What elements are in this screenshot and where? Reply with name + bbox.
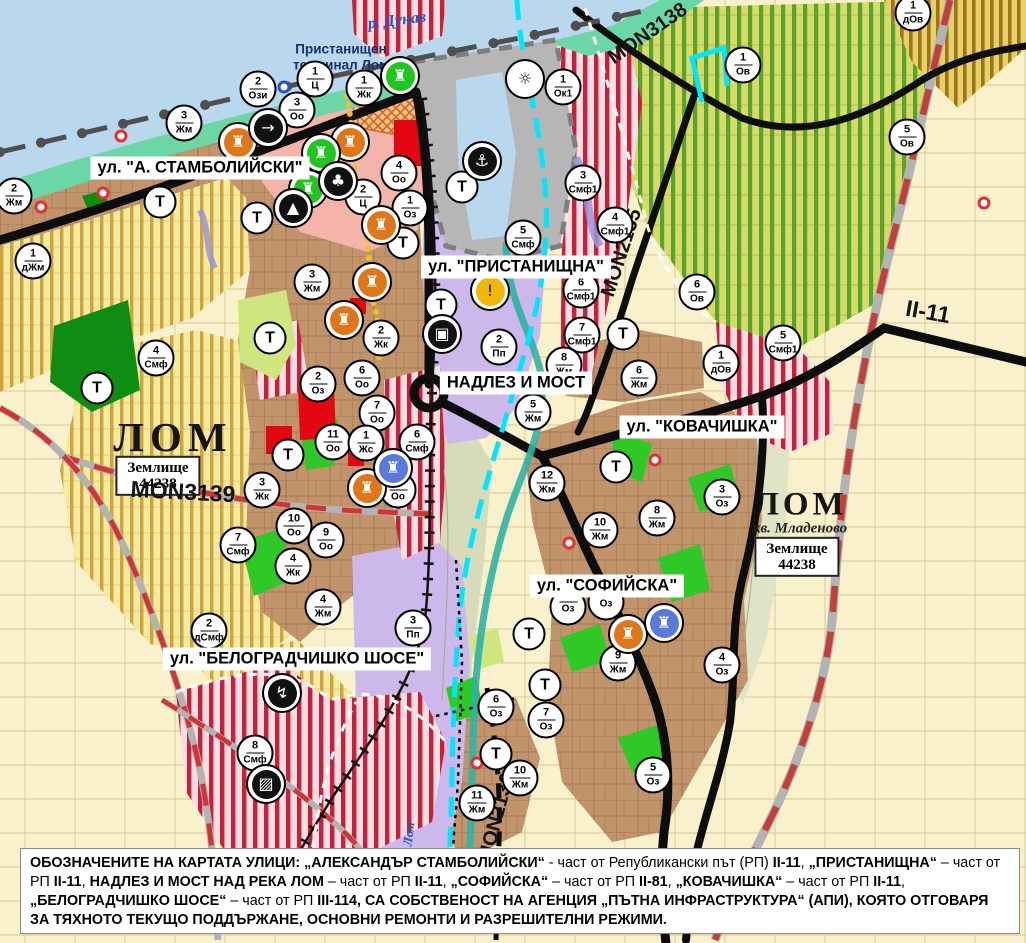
legend-note: ОБОЗНАЧЕНИТЕ НА КАРТАТА УЛИЦИ: „АЛЕКСАНД… xyxy=(20,848,1020,934)
street-label-sofiyska: ул. "СОФИЙСКА" xyxy=(530,575,684,598)
zone-marker-Жк: 3Жк xyxy=(244,472,281,509)
zone-marker-Ов: 5Ов xyxy=(889,119,926,156)
map-canvas[interactable]: р. Дунав Пристанищен терминал Лом ЛОМ Зе… xyxy=(0,0,1026,943)
red-node-icon xyxy=(649,454,662,467)
land-plot-box-east: Землище 44238 xyxy=(754,537,839,577)
zone-marker-Смф: 4Смф xyxy=(138,340,175,377)
zone-marker-Жм: 10Жм xyxy=(582,512,619,549)
zone-marker-Жм: 3Жм xyxy=(166,105,203,142)
zone-marker-дСмф: 2дСмф xyxy=(191,613,228,650)
zone-marker-Пп: 3Пп xyxy=(395,610,432,647)
t-marker: Т xyxy=(254,322,287,355)
zone-marker-Оз: 7Оз xyxy=(528,702,565,739)
zone-marker-Смф: 7Смф xyxy=(220,527,257,564)
red-node-icon xyxy=(978,197,991,210)
zone-marker-Пп: 2Пп xyxy=(481,329,518,366)
zone-marker-дОв: 1дОв xyxy=(703,345,740,382)
zone-marker-Смф1: 3Смф1 xyxy=(565,165,602,202)
t-marker: Т xyxy=(600,451,633,484)
sun-icon: ☼ xyxy=(505,59,545,99)
anchor-icon: ⚓ xyxy=(462,141,502,181)
zone-marker-Жм: 12Жм xyxy=(529,465,566,502)
street-label-pristanishtna: ул. "ПРИСТАНИЩНА" xyxy=(421,256,611,279)
t-marker: Т xyxy=(272,439,305,472)
zone-marker-Жм: 11Жм xyxy=(459,785,496,822)
street-label-kovachishka: ул. "КОВАЧИШКА" xyxy=(620,416,785,439)
zone-marker-Жм: 3Жм xyxy=(294,264,331,301)
red-node-icon xyxy=(115,130,128,143)
street-label-nadlez-most: НАДЛЕЗ И МОСТ xyxy=(440,372,592,395)
plot-line1: Землище xyxy=(127,460,188,476)
t-marker: Т xyxy=(144,186,177,219)
zone-marker-Жк: 4Жк xyxy=(275,548,312,585)
zone-marker-Жк: 2Жк xyxy=(363,320,400,357)
zone-marker-Смф: 5Смф xyxy=(505,220,542,257)
zone-marker-Жм: 8Жм xyxy=(639,500,676,537)
heritage-blue-icon: ♜ xyxy=(373,448,413,488)
heritage-icon: ♜ xyxy=(608,614,648,654)
plot-line2: 44238 xyxy=(766,557,827,573)
heritage-blue-icon: ♜ xyxy=(644,603,684,643)
zone-marker-Оо: 11Оо xyxy=(315,424,352,461)
street-label-stamboliyski: ул. "А. СТАМБОЛИЙСКИ" xyxy=(91,157,310,180)
zone-marker-Смф1: 5Смф1 xyxy=(765,325,802,362)
street-label-belogradchishko: ул. "БЕЛОГРАДЧИШКО ШОСЕ" xyxy=(163,648,431,671)
zone-marker-Оо: 9Оо xyxy=(308,522,345,559)
zone-marker-Оз: 3Оз xyxy=(704,479,741,516)
zone-marker-Оз: 6Оз xyxy=(478,689,515,726)
red-node-icon xyxy=(35,201,48,214)
zone-marker-Жм: 6Жм xyxy=(621,360,658,397)
heritage-icon: ♜ xyxy=(324,300,364,340)
road-label-mon3139: MON3139 xyxy=(130,476,236,508)
zone-marker-Ок1: 1Ок1 xyxy=(545,69,582,106)
zone-marker-Ози: 2Ози xyxy=(240,71,277,108)
t-marker: Т xyxy=(81,372,114,405)
zone-marker-Оз: 5Оз xyxy=(635,757,672,794)
zone-marker-Оо: 6Оо xyxy=(344,360,381,397)
zone-marker-Жк: 1Жк xyxy=(346,70,383,107)
clover-icon: ♣ xyxy=(318,161,358,201)
zone-marker-Оз: 2Оз xyxy=(300,366,337,403)
zone-marker-Оо: 4Оо xyxy=(381,155,418,192)
t-marker: Т xyxy=(607,318,640,351)
zone-marker-Жм: 4Жм xyxy=(305,589,342,626)
hatched-icon: ▨ xyxy=(246,764,286,804)
city-label-lom-west: ЛОМ xyxy=(113,413,232,461)
heritage-icon: ♜ xyxy=(352,262,392,302)
heritage-icon: ♜ xyxy=(361,205,401,245)
power-icon: ↯ xyxy=(262,673,302,713)
heritage-green-icon: ♜ xyxy=(380,56,420,96)
zone-marker-Ов: 1Ов xyxy=(725,47,762,84)
river-lom-label: Лом xyxy=(400,821,419,847)
plot-line1: Землище xyxy=(766,541,827,557)
red-node-icon xyxy=(97,187,110,200)
zone-marker-Жм: 5Жм xyxy=(515,394,552,431)
t-marker: Т xyxy=(529,669,562,702)
truck-icon: ▣ xyxy=(422,314,462,354)
t-marker: Т xyxy=(513,618,546,651)
t-marker: Т xyxy=(480,738,513,771)
zone-marker-Смф1: 4Смф1 xyxy=(597,207,634,244)
t-marker: Т xyxy=(241,202,274,235)
zone-marker-Оз: 4Оз xyxy=(704,647,741,684)
red-node-icon xyxy=(563,537,576,550)
blue-node-icon xyxy=(278,81,291,94)
zone-marker-Ов: 6Ов xyxy=(679,274,716,311)
zone-marker-дЖм: 1дЖм xyxy=(15,243,52,280)
city-label-lom-east: ЛОМ xyxy=(754,487,847,524)
tunnel-icon: ▲ xyxy=(273,188,313,228)
key-icon: → xyxy=(248,108,288,148)
district-label: кв. Младеново xyxy=(753,521,847,538)
